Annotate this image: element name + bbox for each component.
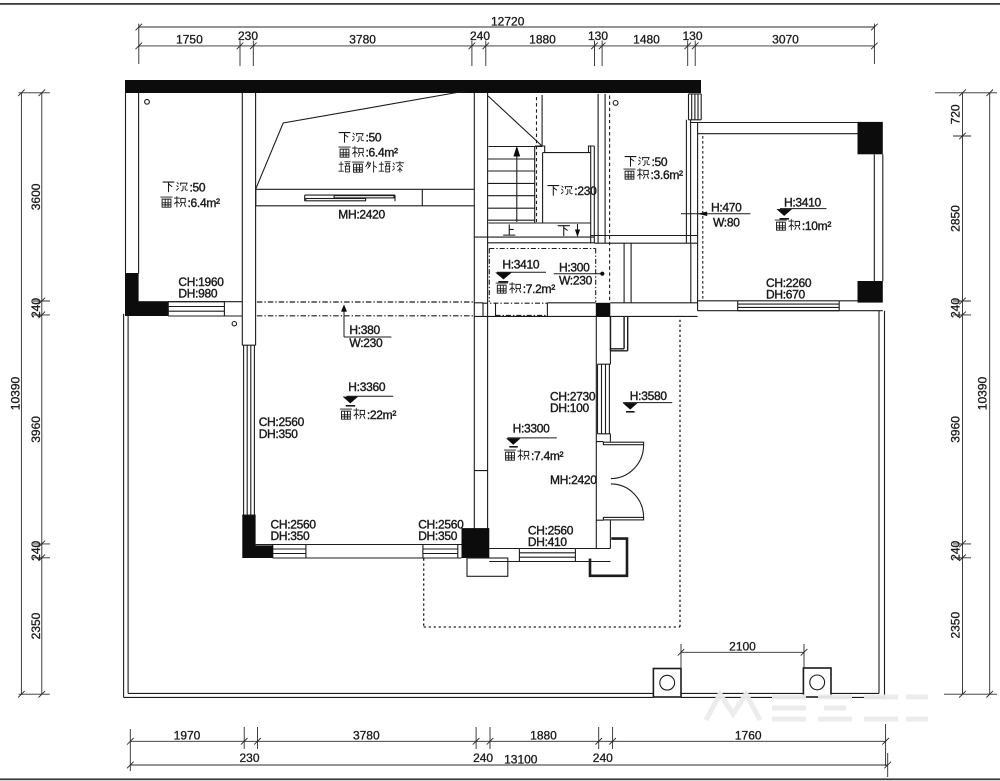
svg-text::22m²: :22m² (367, 408, 396, 422)
svg-text:240: 240 (949, 298, 963, 318)
svg-text:720: 720 (949, 104, 963, 124)
svg-text:MH:2420: MH:2420 (550, 473, 597, 487)
svg-text:DH:350: DH:350 (271, 529, 311, 543)
svg-text:240: 240 (473, 751, 493, 765)
svg-text:3780: 3780 (349, 32, 376, 46)
svg-text:1750: 1750 (176, 32, 203, 46)
svg-text:1480: 1480 (633, 32, 660, 46)
svg-text:3070: 3070 (772, 32, 799, 46)
svg-text:3960: 3960 (949, 416, 963, 443)
svg-text:DH:980: DH:980 (178, 287, 218, 301)
svg-text:DH:410: DH:410 (528, 535, 568, 549)
svg-text:1760: 1760 (735, 728, 762, 742)
svg-text:240: 240 (470, 29, 490, 43)
svg-text:H:3580: H:3580 (630, 389, 668, 403)
svg-text:3600: 3600 (29, 183, 43, 210)
svg-text:240: 240 (949, 540, 963, 560)
svg-text::6.4m²: :6.4m² (366, 146, 399, 160)
svg-text:130: 130 (588, 29, 608, 43)
svg-text:10390: 10390 (976, 376, 990, 410)
svg-text:240: 240 (29, 298, 43, 318)
svg-text::230: :230 (574, 184, 597, 198)
svg-text:H:3360: H:3360 (348, 380, 386, 394)
svg-text:1880: 1880 (530, 728, 557, 742)
svg-text:DH:670: DH:670 (766, 288, 806, 302)
svg-text:DH:350: DH:350 (259, 427, 299, 441)
svg-text:240: 240 (29, 540, 43, 560)
svg-text:W:230: W:230 (349, 336, 383, 350)
svg-text:W:80: W:80 (713, 216, 740, 230)
svg-text:2850: 2850 (949, 205, 963, 232)
svg-text:12720: 12720 (491, 14, 525, 28)
svg-text:DH:350: DH:350 (418, 529, 458, 543)
svg-text:3960: 3960 (29, 416, 43, 443)
svg-text:230: 230 (239, 751, 259, 765)
svg-text:H:3410: H:3410 (784, 196, 822, 210)
svg-text::7.4m²: :7.4m² (531, 449, 564, 463)
svg-text::10m²: :10m² (802, 219, 831, 233)
svg-text:13100: 13100 (504, 752, 538, 766)
svg-text:2350: 2350 (949, 612, 963, 639)
svg-text:10390: 10390 (9, 376, 23, 410)
svg-text:DH:100: DH:100 (550, 401, 590, 415)
svg-text:MH:2420: MH:2420 (338, 208, 385, 222)
svg-text:H:3410: H:3410 (502, 258, 540, 272)
svg-text:H:470: H:470 (711, 201, 742, 215)
svg-text:H:3300: H:3300 (513, 422, 551, 436)
svg-text:2350: 2350 (29, 612, 43, 639)
svg-text:130: 130 (682, 29, 702, 43)
svg-text:W:230: W:230 (559, 273, 593, 287)
svg-text:2100: 2100 (729, 639, 756, 653)
svg-text::50: :50 (190, 180, 206, 194)
svg-text::7.2m²: :7.2m² (523, 282, 556, 296)
svg-text:H:380: H:380 (349, 323, 380, 337)
svg-text:230: 230 (238, 29, 258, 43)
svg-text::50: :50 (366, 131, 382, 145)
svg-text:3780: 3780 (353, 728, 380, 742)
svg-text::6.4m²: :6.4m² (188, 196, 221, 210)
svg-text::3.6m²: :3.6m² (651, 168, 684, 182)
svg-text:1970: 1970 (174, 728, 201, 742)
svg-text:240: 240 (593, 751, 613, 765)
svg-text:1880: 1880 (529, 32, 556, 46)
svg-text::50: :50 (652, 155, 668, 169)
